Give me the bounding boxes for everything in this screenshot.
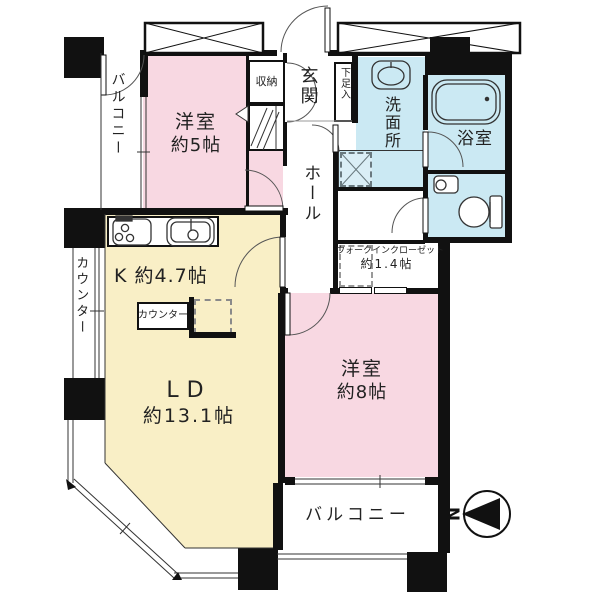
counter-tag-label: カウンター xyxy=(137,302,189,330)
balcony-bottom-label: バルコニー xyxy=(295,502,420,530)
balcony-left-label: バルコニー xyxy=(108,72,126,157)
compass: N xyxy=(442,491,510,537)
living-name: LD xyxy=(166,377,211,405)
hall-label: ホール xyxy=(299,164,320,224)
bedroom8-size: 約8帖 xyxy=(337,382,387,405)
kitchen-label: K 約4.7帖 xyxy=(114,265,208,289)
sink-icon xyxy=(167,218,214,246)
kitchen-door-arc xyxy=(235,237,283,287)
bedroom5-size: 約5帖 xyxy=(171,135,221,158)
bathtub-icon xyxy=(432,80,500,124)
washing-pan-cross xyxy=(341,153,371,186)
wic-label: ウォークインクローゼット 約1.4帖 xyxy=(336,246,438,272)
floor-plan: N バルコニー 洋室 約5帖 収納 玄関 下足入 洗面所 浴室 ホール ウォーク… xyxy=(0,0,600,600)
counter-bay-label: カウンター xyxy=(72,256,88,336)
washbasin-icon xyxy=(372,61,410,89)
bedroom5-door-leaf xyxy=(245,206,283,211)
toilet-door-leaf xyxy=(423,198,428,233)
balcony-door-leaf xyxy=(101,55,106,95)
living-size: 約13.1帖 xyxy=(143,405,235,429)
bedroom5-label: 洋室 約5帖 xyxy=(146,104,246,164)
shoe-cabinet-label: 下足入 xyxy=(337,67,350,100)
storage-label: 収納 xyxy=(248,60,285,104)
entrance-label: 玄関 xyxy=(296,66,319,106)
hatch-box-left xyxy=(145,23,263,53)
bedroom5-door-arc xyxy=(245,170,283,210)
washroom-door-leaf xyxy=(333,125,338,152)
block-top-right-overlay xyxy=(430,37,470,57)
washroom-label: 洗面所 xyxy=(381,96,401,150)
toilet-door-arc xyxy=(392,198,425,233)
bath-door-leaf xyxy=(423,132,428,167)
bathroom-label: 浴室 xyxy=(446,128,504,152)
bedroom8-door-arc xyxy=(288,293,330,335)
bedroom8-name: 洋室 xyxy=(341,358,383,382)
entrance-door-leaf xyxy=(325,8,330,52)
bedroom8-door-leaf xyxy=(285,293,290,335)
entrance-door-arc xyxy=(281,6,328,52)
hatch-box-right xyxy=(338,23,520,53)
kitchen-door-leaf xyxy=(280,237,285,287)
toilet-icon xyxy=(434,176,502,228)
wic-name: ウォークインクローゼット xyxy=(336,246,438,257)
stove-icon xyxy=(113,216,151,245)
living-label: LD 約13.1帖 xyxy=(113,372,265,434)
bedroom8-label: 洋室 約8帖 xyxy=(312,350,412,412)
wic-size: 約1.4帖 xyxy=(336,257,438,272)
bedroom5-name: 洋室 xyxy=(175,111,217,135)
north-label: N xyxy=(442,507,462,521)
